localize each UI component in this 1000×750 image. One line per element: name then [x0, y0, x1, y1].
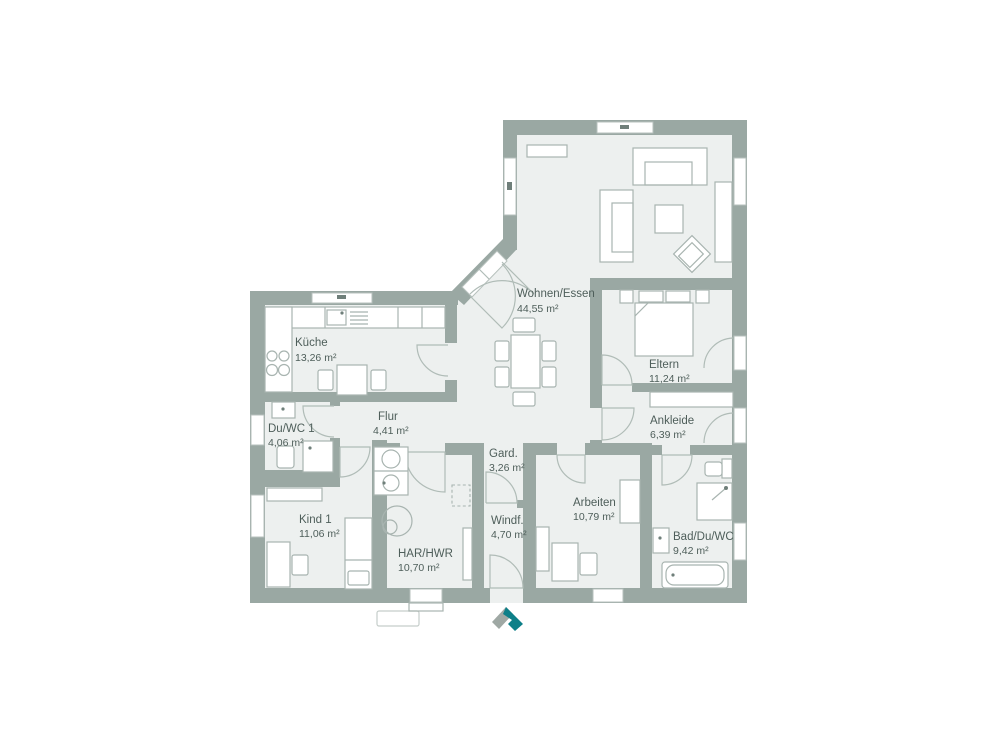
chair: [580, 553, 597, 575]
sink-tap: [340, 311, 343, 314]
window: [734, 158, 746, 205]
kitchen-table: [337, 365, 367, 395]
wall: [590, 290, 602, 390]
room-label-kind1: Kind 1: [299, 514, 332, 526]
pillow: [348, 571, 369, 585]
room-area-kueche: 13,26 m²: [295, 352, 337, 364]
door-opening: [445, 343, 457, 380]
room-area-har-hwr: 10,70 m²: [398, 562, 440, 574]
tub-drain: [671, 573, 674, 576]
shower-drain: [308, 446, 311, 449]
shower: [303, 441, 333, 472]
room-area-ankleide: 6,39 m²: [650, 429, 686, 441]
room-area-arbeiten: 10,79 m²: [573, 511, 615, 523]
window-sash: [337, 295, 346, 299]
wall: [640, 445, 652, 589]
sofa-top: [633, 148, 707, 185]
door-opening: [590, 408, 602, 440]
sofa-left: [600, 190, 633, 262]
entrance-opening: [490, 588, 523, 603]
desk: [552, 543, 578, 581]
kitchen-chair: [371, 370, 386, 390]
room-area-wohnen-essen: 44,55 m²: [517, 303, 559, 315]
room-label-eltern: Eltern: [649, 359, 679, 371]
window: [251, 495, 264, 537]
room-label-gard: Gard.: [489, 448, 518, 460]
room-area-kind1: 11,06 m²: [299, 528, 340, 540]
wall: [250, 291, 265, 603]
exterior: [377, 603, 523, 631]
room-label-wohnen-essen: Wohnen/Essen: [517, 288, 595, 300]
dining-chair: [495, 367, 509, 387]
wall: [472, 443, 484, 589]
kitchen-counter-left: [265, 307, 292, 392]
basin-tap: [658, 536, 661, 539]
dining-chair: [542, 367, 556, 387]
desk: [267, 542, 290, 587]
ankleide-furniture: [650, 392, 733, 407]
room-label-windf: Windf.: [491, 515, 524, 527]
window: [251, 415, 264, 445]
nightstand-right: [696, 290, 709, 303]
washbasin: [653, 528, 669, 553]
dining-chair: [513, 318, 535, 332]
room-label-kueche: Küche: [295, 337, 328, 349]
door-opening: [662, 445, 690, 455]
room-area-duwc1: 4,06 m²: [268, 437, 304, 449]
toilet-tank: [722, 459, 732, 478]
floor-plan-svg: Wohnen/Essen 44,55 m² Küche 13,26 m² Elt…: [0, 0, 1000, 750]
floor-plan-page: Wohnen/Essen 44,55 m² Küche 13,26 m² Elt…: [0, 0, 1000, 750]
room-label-ankleide: Ankleide: [650, 415, 694, 427]
brand-logo: [492, 607, 523, 631]
room-area-gard: 3,26 m²: [489, 462, 525, 474]
wall-unit: [715, 182, 732, 262]
nightstand-left: [620, 290, 633, 303]
doormat: [377, 611, 419, 626]
dryer-dot: [382, 481, 385, 484]
room-label-arbeiten: Arbeiten: [573, 497, 616, 509]
room-area-windf: 4,70 m²: [491, 529, 527, 541]
wall: [590, 278, 747, 290]
wardrobe: [267, 488, 322, 501]
sideboard: [527, 145, 567, 157]
kitchen-chair: [318, 370, 333, 390]
window-sash: [620, 125, 629, 129]
shelf: [463, 528, 472, 580]
room-area-bad: 9,42 m²: [673, 545, 709, 557]
door-opening: [330, 406, 340, 438]
coffee-table: [655, 205, 683, 233]
room-label-har-hwr: HAR/HWR: [398, 548, 453, 560]
door-opening: [484, 500, 517, 508]
pillow: [639, 291, 663, 302]
room-area-flur: 4,41 m²: [373, 425, 409, 437]
basin-tap: [281, 407, 284, 410]
room-area-eltern: 11,24 m²: [649, 373, 690, 385]
wall: [523, 443, 536, 589]
chair: [292, 555, 308, 575]
dining-chair: [513, 392, 535, 406]
shower-head: [724, 486, 728, 490]
entry-step: [409, 603, 443, 611]
dining-chair: [542, 341, 556, 361]
window: [593, 589, 623, 602]
toilet: [277, 446, 294, 468]
room-label-flur: Flur: [378, 411, 398, 423]
bookshelf: [620, 480, 640, 523]
cabinet: [536, 527, 549, 571]
room-label-bad: Bad/Du/WC: [673, 531, 734, 543]
toilet-bowl: [705, 462, 722, 476]
window-sash: [507, 182, 512, 190]
dining-table: [511, 335, 540, 388]
dining-chair: [495, 341, 509, 361]
window: [734, 336, 746, 370]
room-label-duwc1: Du/WC 1: [268, 423, 315, 435]
window: [734, 523, 746, 560]
window: [734, 408, 746, 443]
window: [410, 589, 442, 602]
double-bed: [635, 303, 693, 356]
wardrobe: [650, 392, 733, 407]
pillow: [666, 291, 690, 302]
